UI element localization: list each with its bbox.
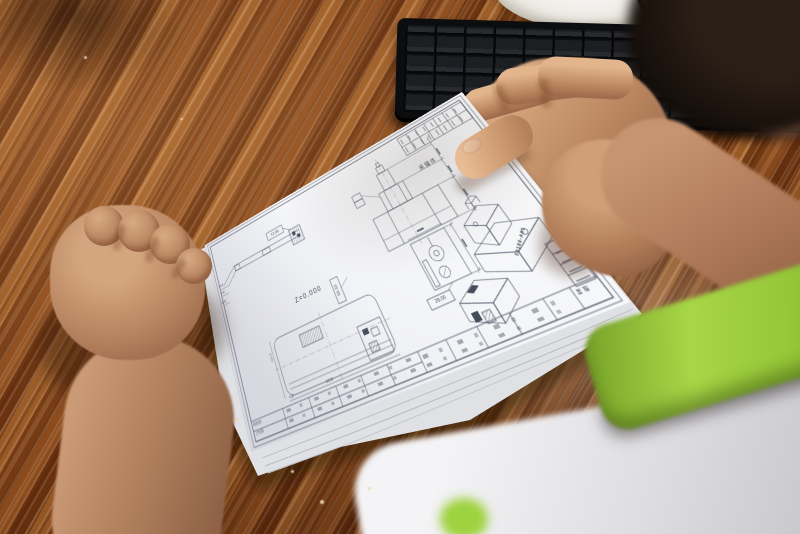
hi-vis-vest-edge xyxy=(440,498,488,534)
desk-crumb xyxy=(291,470,294,473)
photo-scene: 采镶件 Z=0.000 12.00 60.50 26.00 50188-A01 … xyxy=(0,0,800,534)
desk-crumb xyxy=(368,487,371,490)
desk-crumb xyxy=(320,500,324,504)
desk-crumb xyxy=(236,418,239,421)
